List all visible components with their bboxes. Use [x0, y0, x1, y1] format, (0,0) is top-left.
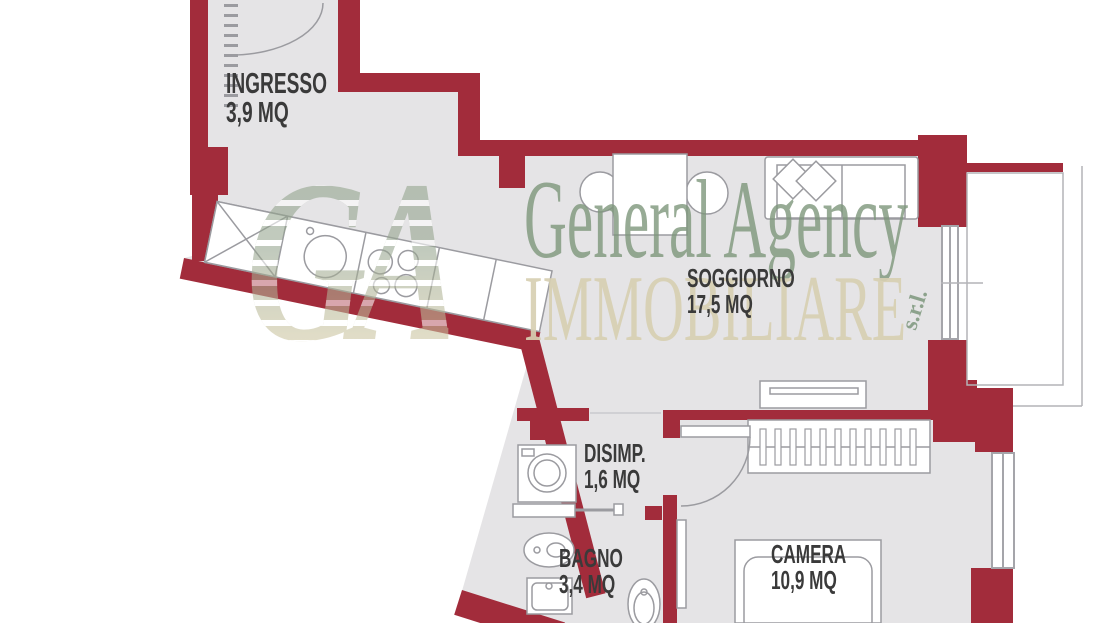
room-area: 17,5 MQ: [687, 291, 795, 317]
floor-plan: GA General Agency IMMOBILIARE s.r.l. ING…: [0, 0, 1110, 623]
dining-set: [580, 154, 728, 235]
room-label-bagno: BAGNO 3,4 MQ: [559, 545, 623, 597]
entry-door-arc: [231, 3, 323, 55]
room-name: INGRESSO: [226, 70, 327, 99]
chair: [686, 172, 728, 214]
room-label-disimpegno: DISIMP. 1,6 MQ: [584, 440, 646, 492]
toilet: [628, 579, 660, 623]
furniture-layer: [0, 0, 1110, 623]
room-area: 10,9 MQ: [771, 567, 846, 593]
room-name: BAGNO: [559, 545, 623, 571]
room-name: DISIMP.: [584, 440, 646, 466]
bagno-door-leaf: [677, 520, 686, 608]
camera-door-arc: [681, 437, 750, 506]
kitchen-counter: [205, 202, 552, 332]
washing-machine: [518, 445, 576, 502]
room-label-ingresso: INGRESSO 3,9 MQ: [226, 70, 327, 128]
towel-rail: [513, 504, 623, 517]
wardrobe: [748, 420, 930, 473]
room-name: CAMERA: [771, 541, 846, 567]
balcony: [941, 166, 1082, 406]
sofa: [765, 157, 918, 219]
camera-door: [681, 426, 750, 506]
room-label-camera: CAMERA 10,9 MQ: [771, 541, 846, 593]
room-area: 3,9 MQ: [226, 99, 327, 128]
dining-table: [613, 154, 687, 235]
room-name: SOGGIORNO: [687, 265, 795, 291]
room-area: 1,6 MQ: [584, 466, 646, 492]
sideboard: [760, 381, 866, 408]
room-area: 3,4 MQ: [559, 571, 623, 597]
room-label-soggiorno: SOGGIORNO 17,5 MQ: [687, 265, 795, 317]
